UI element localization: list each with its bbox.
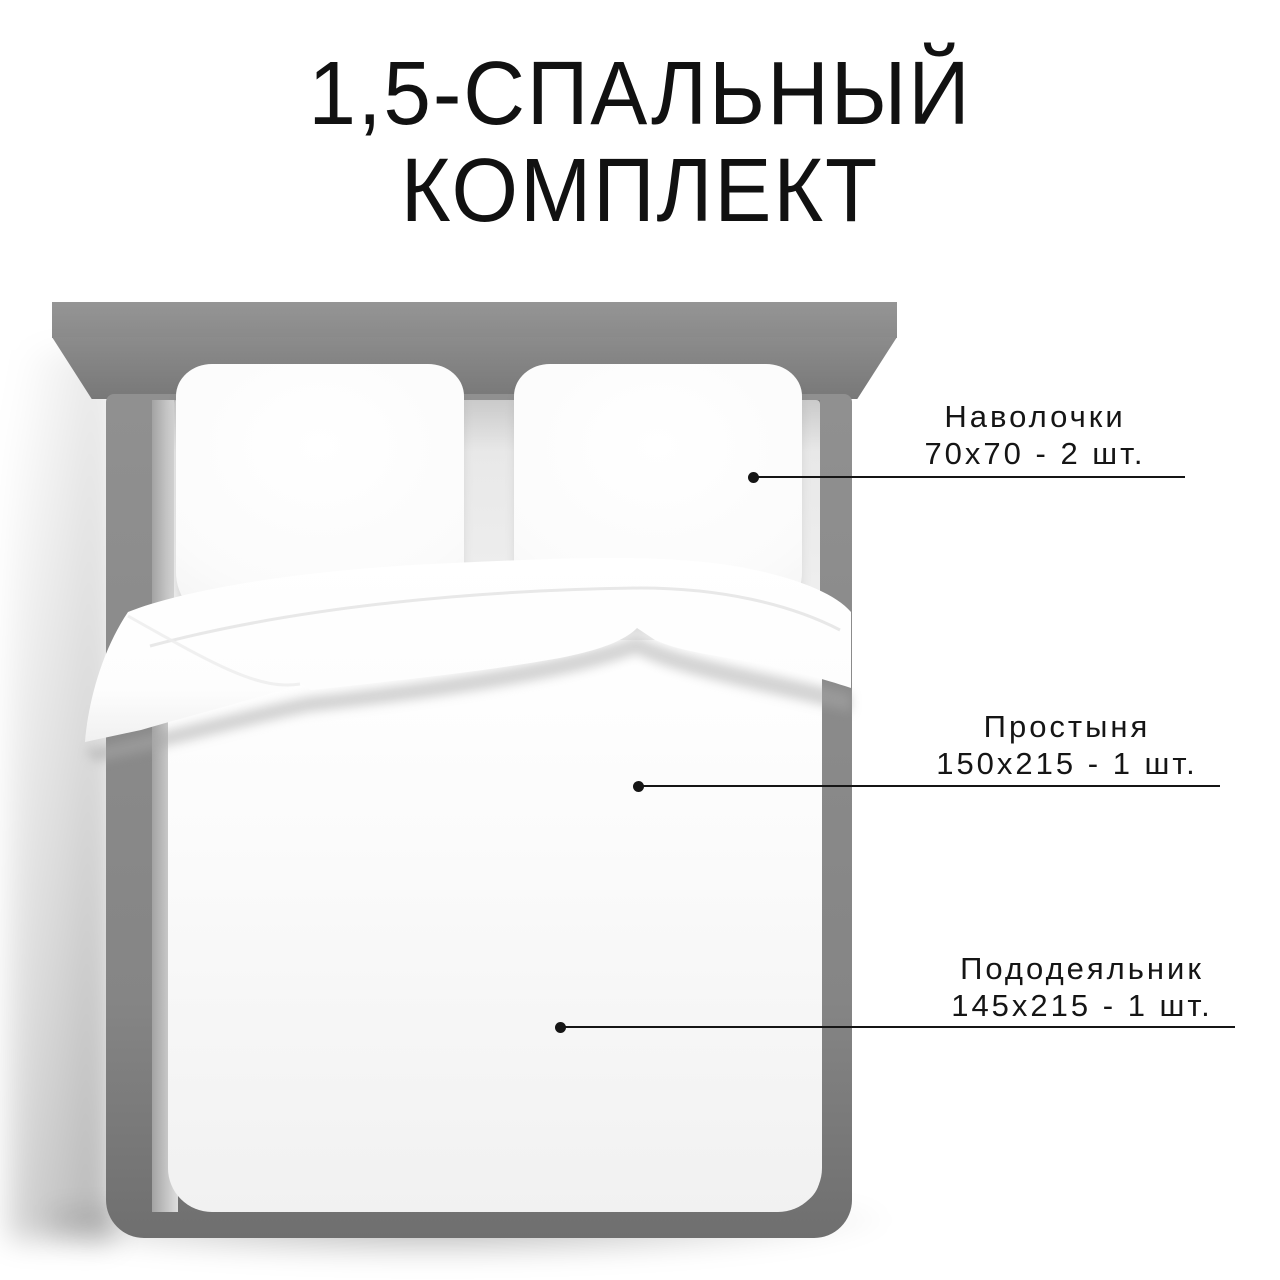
callout-sheet-label: Простыня	[917, 708, 1217, 745]
pillow-left	[176, 364, 464, 620]
bedding-set-infographic: 1,5-СПАЛЬНЫЙ КОМПЛЕКТ	[0, 0, 1280, 1280]
bed-illustration	[0, 0, 1280, 1280]
callout-duvet-cover-dot	[555, 1022, 566, 1033]
callout-duvet-cover-line	[560, 1026, 1235, 1028]
pillow-right	[514, 364, 802, 620]
callout-sheet-dot	[633, 781, 644, 792]
headboard-top	[52, 302, 897, 338]
callout-pillowcases-dot	[748, 472, 759, 483]
duvet-body	[168, 640, 822, 1212]
callout-pillowcases-line	[753, 476, 1185, 478]
bed-shadow-left	[8, 350, 112, 1240]
callout-sheet-spec: 150х215 - 1 шт.	[917, 745, 1217, 782]
callout-sheet-line	[638, 785, 1220, 787]
callout-pillowcases-label: Наволочки	[885, 398, 1185, 435]
callout-duvet-cover-label: Пододеяльник	[928, 950, 1236, 987]
callout-pillowcases-spec: 70х70 - 2 шт.	[885, 435, 1185, 472]
callout-duvet-cover-spec: 145х215 - 1 шт.	[928, 987, 1236, 1024]
